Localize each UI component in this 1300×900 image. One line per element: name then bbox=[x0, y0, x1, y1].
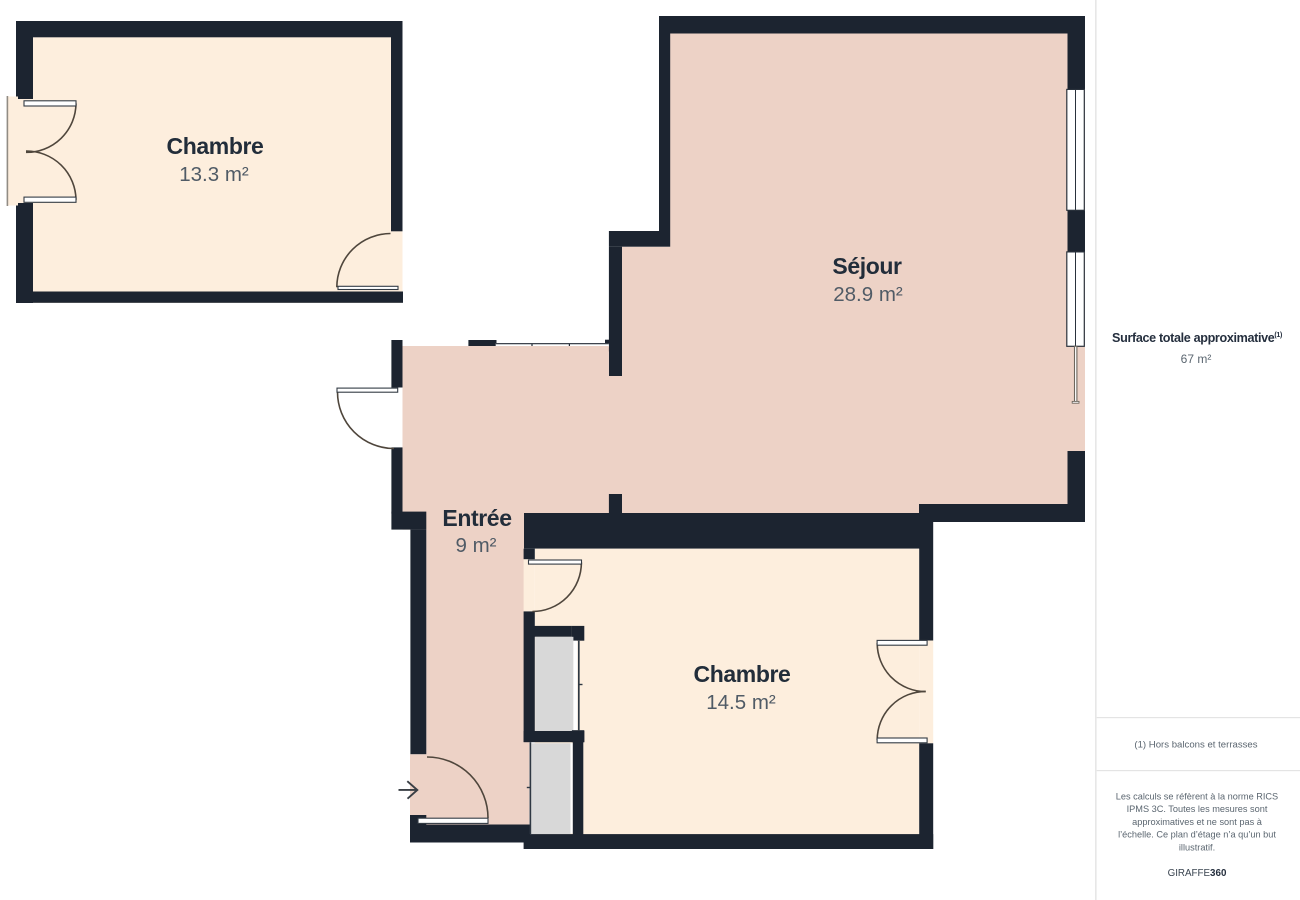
svg-text:Séjour: Séjour bbox=[832, 253, 902, 279]
svg-text:28.9 m²: 28.9 m² bbox=[833, 283, 903, 306]
svg-text:approximatives et ne sont pas: approximatives et ne sont pas à bbox=[1132, 817, 1263, 827]
svg-text:l’échelle. Ce plan d’étage n’a: l’échelle. Ce plan d’étage n’a qu’un but bbox=[1118, 830, 1276, 840]
svg-text:Surface totale approximative(1: Surface totale approximative(1) bbox=[1112, 331, 1282, 345]
svg-text:Chambre: Chambre bbox=[167, 133, 264, 159]
svg-text:67 m²: 67 m² bbox=[1181, 352, 1212, 366]
svg-text:(1) Hors balcons et terrasses: (1) Hors balcons et terrasses bbox=[1134, 740, 1257, 751]
svg-text:GIRAFFE360: GIRAFFE360 bbox=[1168, 868, 1227, 879]
svg-text:illustratif.: illustratif. bbox=[1179, 842, 1215, 852]
svg-text:IPMS 3C. Toutes les mesures so: IPMS 3C. Toutes les mesures sont bbox=[1127, 804, 1268, 814]
svg-text:13.3 m²: 13.3 m² bbox=[179, 163, 249, 186]
svg-text:14.5 m²: 14.5 m² bbox=[706, 691, 776, 714]
svg-text:Chambre: Chambre bbox=[694, 661, 791, 687]
svg-text:9 m²: 9 m² bbox=[456, 534, 497, 557]
svg-text:Les calculs se réfèrent à la n: Les calculs se réfèrent à la norme RICS bbox=[1116, 792, 1278, 802]
svg-text:Entrée: Entrée bbox=[442, 505, 511, 531]
